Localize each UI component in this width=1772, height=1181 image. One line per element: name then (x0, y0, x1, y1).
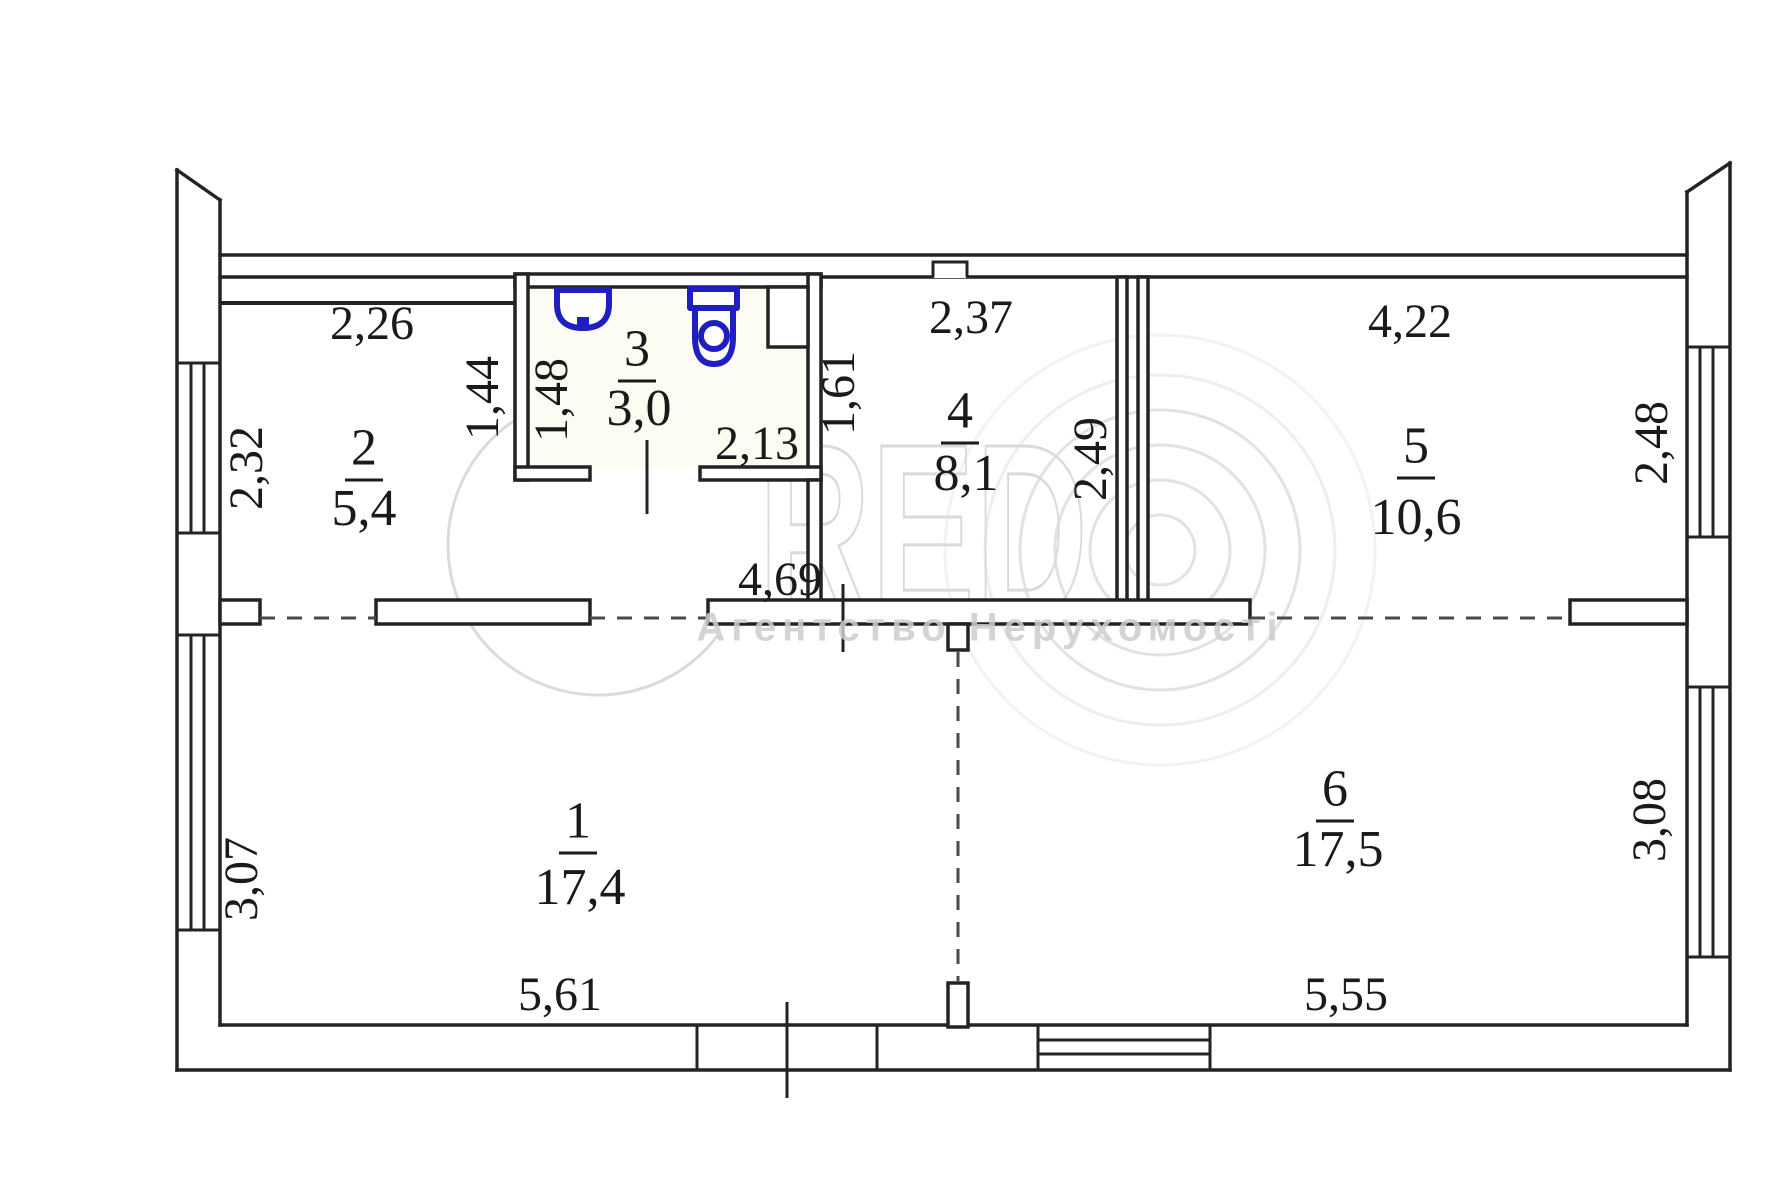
room1-area: 17,4 (535, 862, 626, 914)
toilet-icon (690, 289, 737, 364)
dim-room2-width: 2,26 (330, 300, 414, 348)
dim-bath-inner-left: 1,48 (528, 358, 576, 442)
vent-shaft (768, 287, 808, 347)
room1-number: 1 (559, 796, 597, 855)
room4-area: 8,1 (934, 448, 999, 500)
dim-room4-right: 2,49 (1067, 417, 1115, 501)
room3-number: 3 (618, 324, 656, 383)
divider-stub-bottom (948, 983, 968, 1027)
room4-room5-wall-b (1138, 277, 1148, 603)
dashed-partitions (260, 618, 1570, 981)
room3-area: 3,0 (607, 383, 672, 435)
floor-plan-drawing: RED (0, 0, 1772, 1181)
dim-room5-width: 4,22 (1368, 298, 1452, 346)
room2-number: 2 (345, 423, 383, 482)
window-room6-bottom-icon (1038, 1025, 1210, 1070)
top-wall-notch (933, 262, 967, 278)
dim-hall-width: 4,69 (738, 556, 822, 604)
room4-number: 4 (941, 386, 979, 445)
room6-number: 6 (1316, 764, 1354, 823)
room5-number: 5 (1397, 421, 1435, 480)
dim-room1-width: 5,61 (518, 971, 602, 1019)
room4-room5-wall-a (1117, 277, 1127, 603)
chimney-slant-right (1687, 163, 1730, 192)
room5-area: 10,6 (1371, 492, 1462, 544)
dim-room4-width: 2,37 (929, 294, 1013, 342)
dim-bath-outer-left: 1,44 (459, 356, 507, 440)
dim-room2-window: 2,32 (223, 426, 271, 510)
watermark-agency-text: Агентство Нерухомості (696, 606, 1283, 651)
sink-icon (557, 290, 609, 328)
window-room1-icon (177, 635, 220, 930)
dim-room1-window: 3,07 (218, 837, 266, 921)
dim-room6-width: 5,55 (1304, 971, 1388, 1019)
window-room6-icon (1687, 687, 1730, 957)
dim-bath-right: 1,61 (815, 351, 863, 435)
room6-area: 17,5 (1293, 824, 1384, 876)
dim-bath-width: 2,13 (715, 420, 799, 468)
window-room5-icon (1687, 347, 1730, 537)
dim-room6-window: 3,08 (1626, 778, 1674, 862)
floor-plan: RED (0, 0, 1772, 1181)
window-room2-icon (177, 363, 220, 533)
chimney-slant-left (177, 170, 220, 200)
dim-room5-window: 2,48 (1628, 401, 1676, 485)
room2-area: 5,4 (332, 483, 397, 535)
